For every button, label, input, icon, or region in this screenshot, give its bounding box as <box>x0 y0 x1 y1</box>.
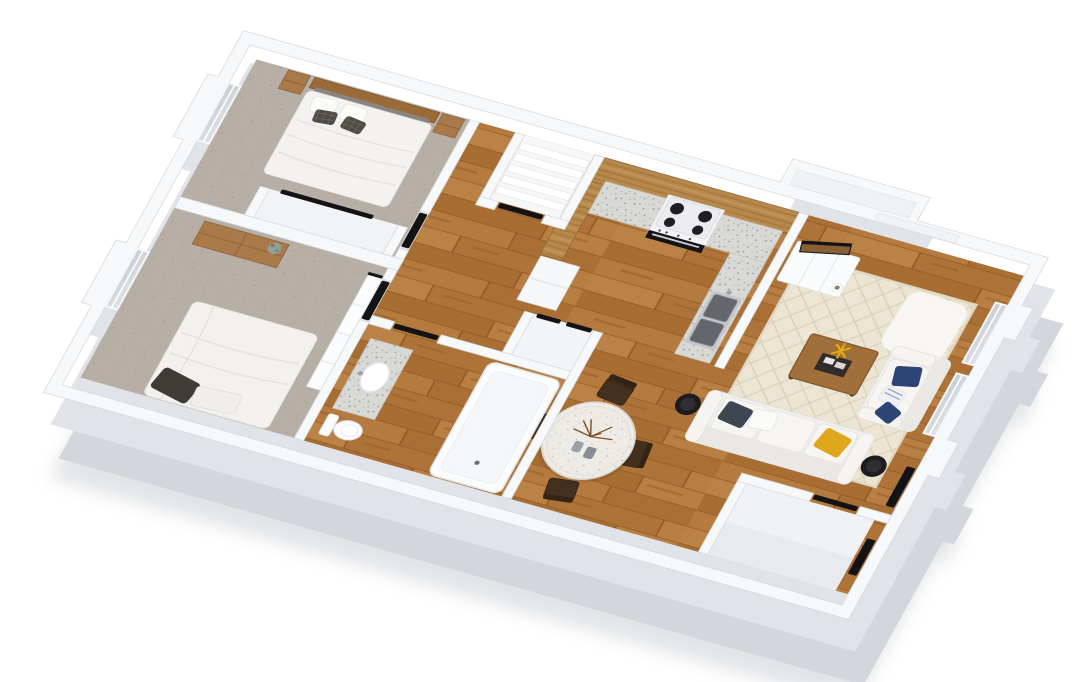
apartment-3d-floor-plan <box>0 0 1080 682</box>
floor-plan-stage <box>0 0 1080 682</box>
loveseat-pillow-navy <box>891 366 923 388</box>
tv <box>800 241 852 255</box>
